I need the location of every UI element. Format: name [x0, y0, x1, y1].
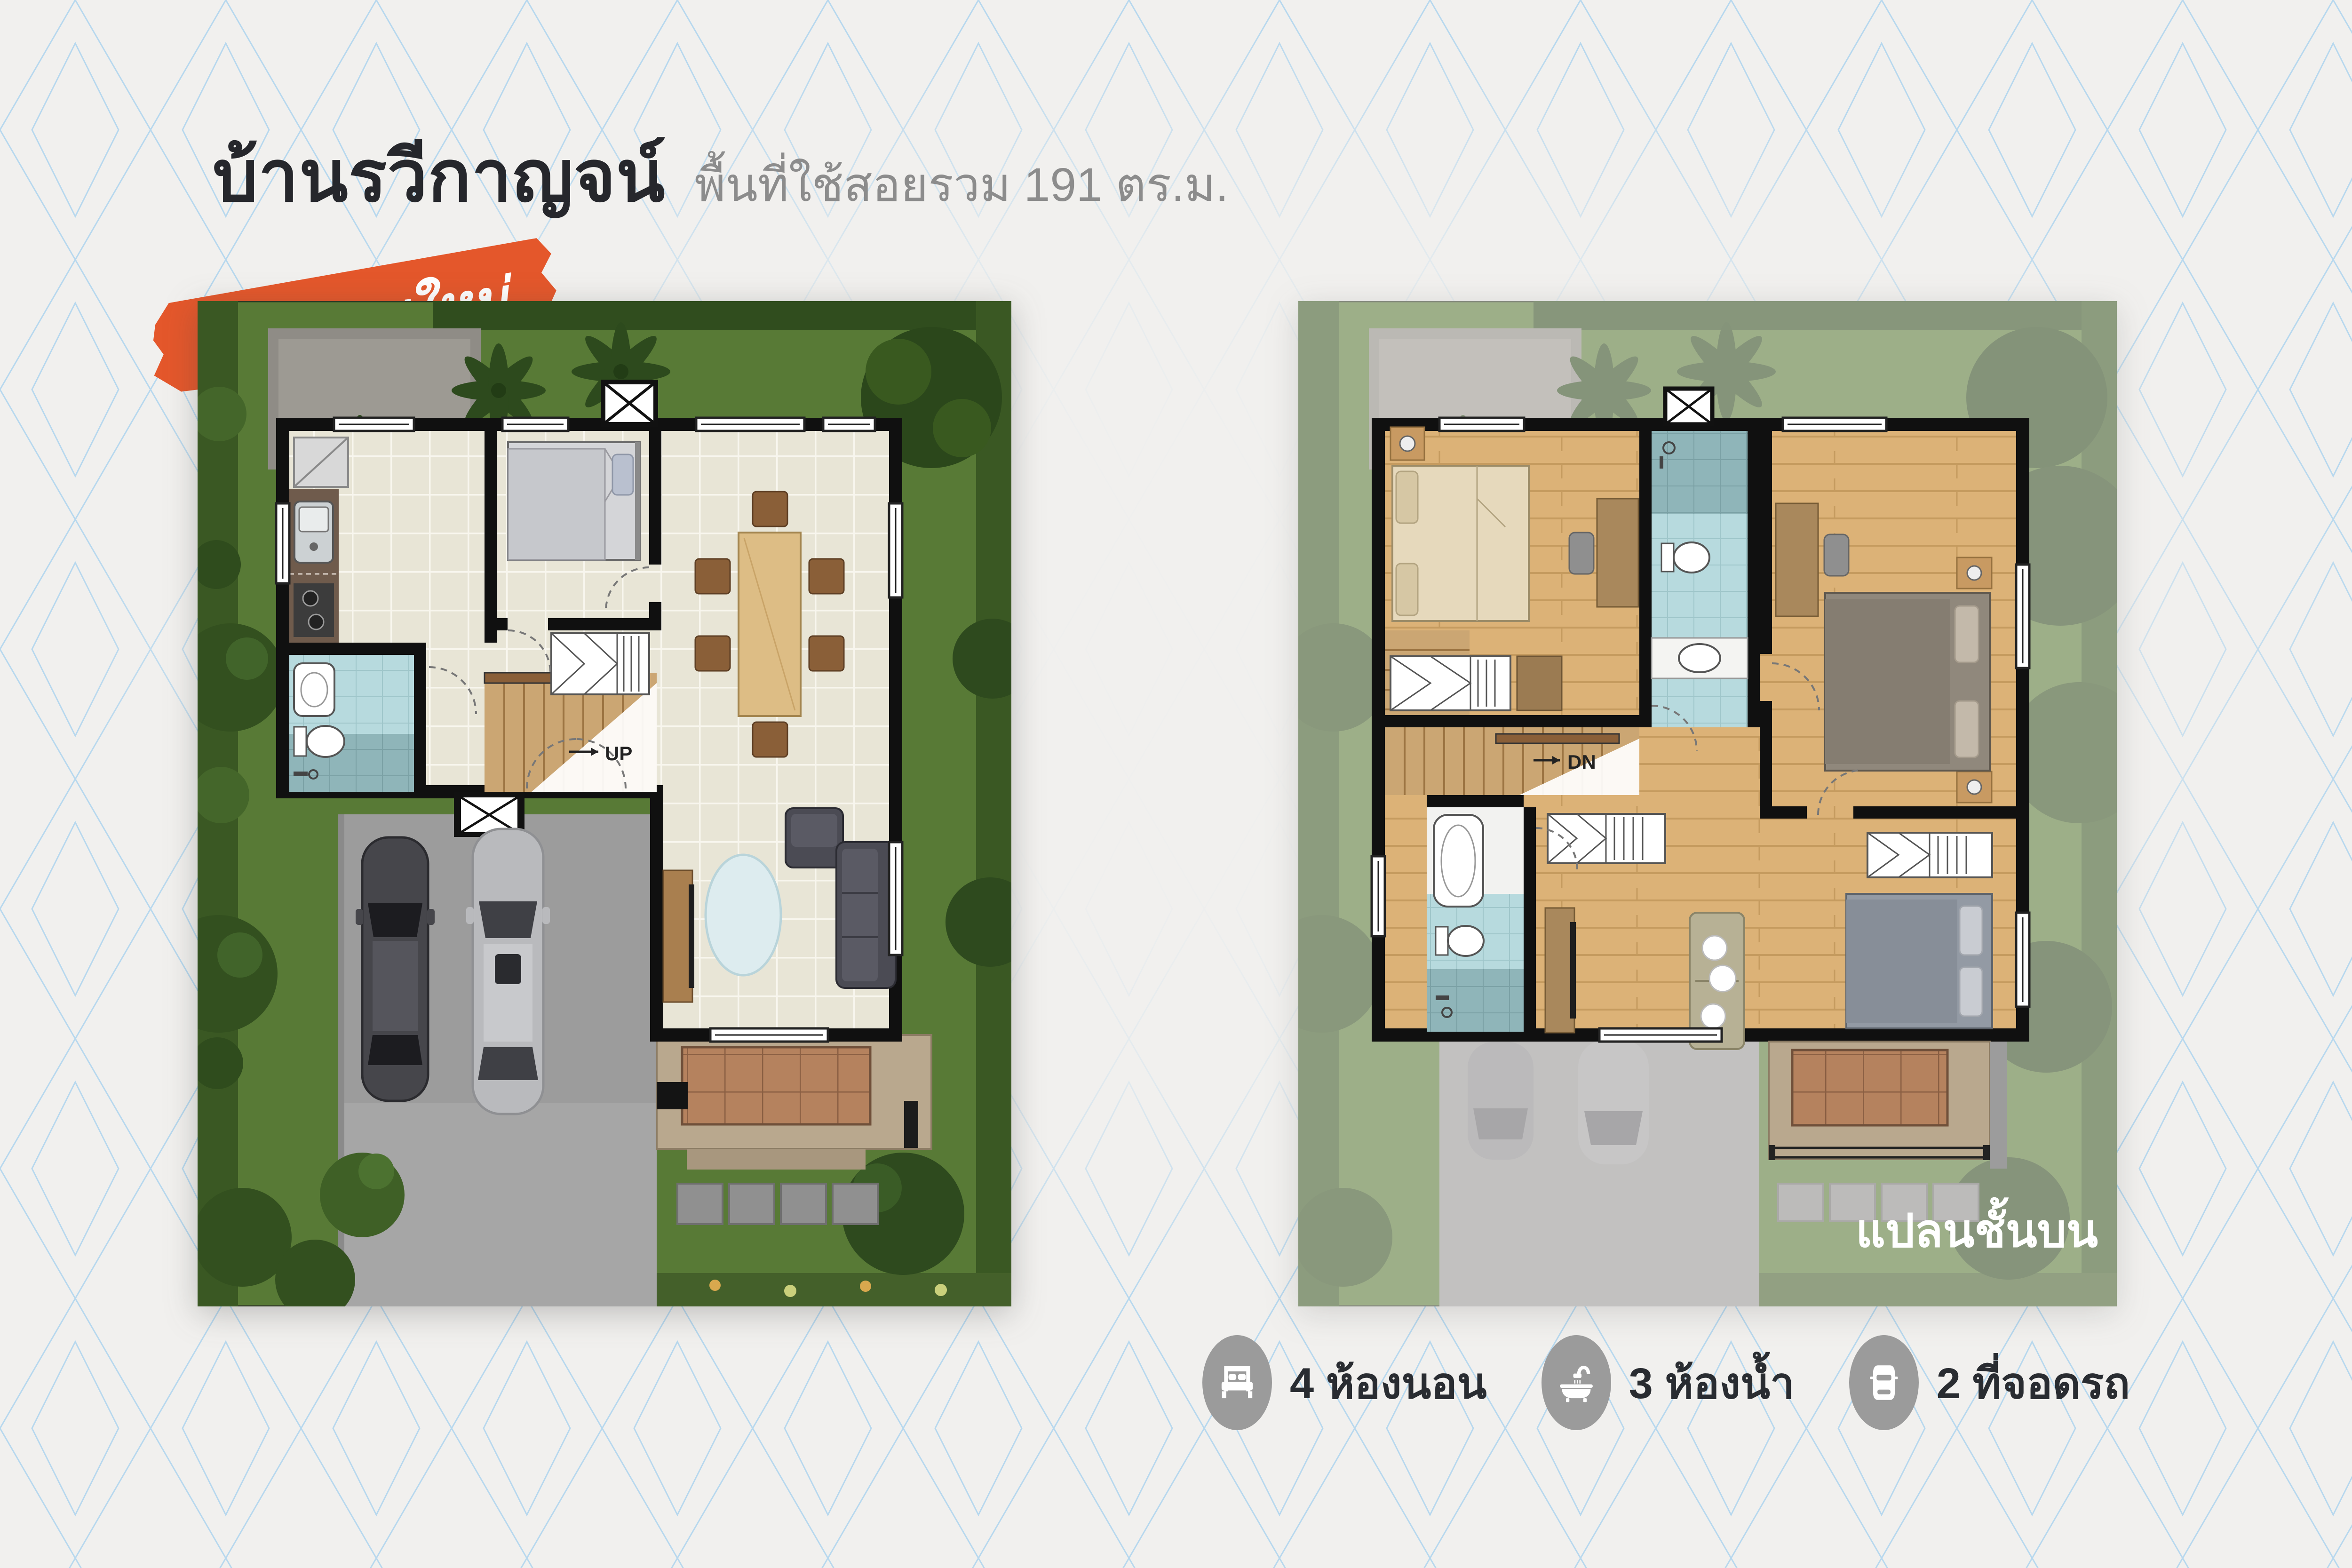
stat-parking: 2 ที่จอดรถ — [1849, 1335, 2130, 1430]
stat-bedrooms-label: 4 ห้องนอน — [1290, 1348, 1487, 1417]
ground-floor-plan: UP — [198, 301, 1011, 1306]
page-subtitle: พื้นที่ใช้สอยรวม 191 ตร.ม. — [695, 147, 1229, 222]
upper-bedroom-3 — [1846, 833, 1992, 1028]
upper-floor-plan: DN — [1298, 301, 2117, 1306]
page-title: บ้านรวีกาญจน์ — [213, 119, 666, 232]
stat-bathrooms: 3 ห้องน้ำ — [1542, 1335, 1795, 1430]
stats-row: 4 ห้องนอน 3 ห้องน้ำ — [1202, 1335, 2130, 1430]
header: บ้านรวีกาญจน์ พื้นที่ใช้สอยรวม 191 ตร.ม. — [213, 119, 1229, 232]
bathtub-icon — [1542, 1335, 1611, 1430]
car-dark — [356, 837, 435, 1101]
stairs-up-label: UP — [605, 742, 632, 764]
stat-parking-label: 2 ที่จอดรถ — [1937, 1348, 2130, 1417]
upper-balcony — [1769, 1042, 2007, 1169]
stairs-down-label: DN — [1567, 751, 1596, 773]
bed-icon — [1202, 1335, 1272, 1430]
upper-floor-caption: แปลนชั้นบน — [1856, 1197, 2098, 1257]
car-silver — [466, 829, 550, 1114]
stat-bathrooms-label: 3 ห้องน้ำ — [1629, 1348, 1795, 1417]
car-icon — [1849, 1335, 1919, 1430]
upper-house: DN — [1372, 389, 2029, 1049]
stat-bedrooms: 4 ห้องนอน — [1202, 1335, 1487, 1430]
